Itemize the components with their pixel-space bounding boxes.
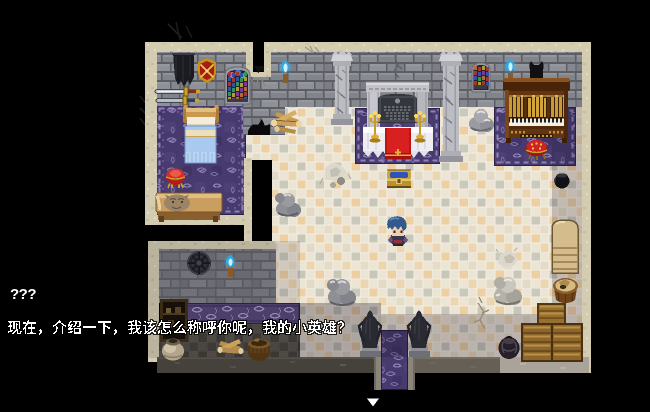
svg-text:???: ??? — [10, 286, 36, 303]
